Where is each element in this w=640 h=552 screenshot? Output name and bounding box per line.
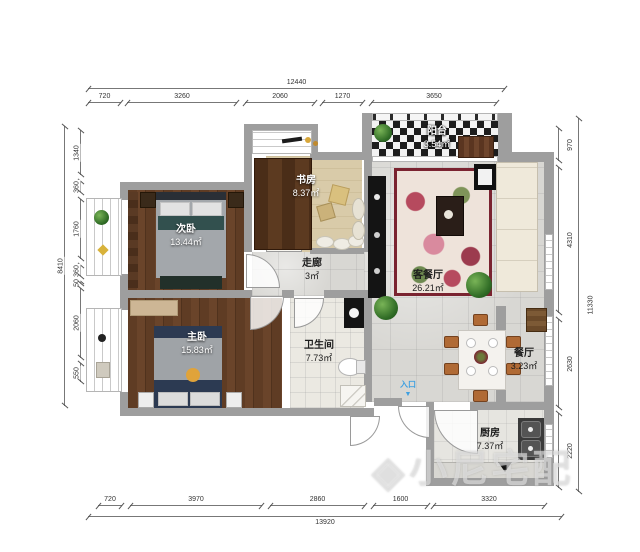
dim-segment: 720: [88, 102, 121, 103]
pillow: [158, 392, 188, 406]
desk-item: [313, 141, 318, 146]
room-name: 走廊: [302, 258, 322, 271]
side-cushion: [352, 221, 365, 240]
nightstand: [228, 192, 244, 208]
side-cushion: [352, 198, 365, 220]
bay-window: [86, 308, 122, 392]
dining-chair: [506, 336, 521, 348]
plate: [488, 366, 498, 376]
room-label-balcony: 阳台 3.54㎡: [424, 126, 451, 150]
room-area: 3㎡: [302, 271, 322, 282]
door-arc-entry-left: [350, 416, 380, 446]
dim-segment: 1270: [322, 102, 363, 103]
dining-chair: [444, 363, 459, 375]
room-label-study: 书房 8.37㎡: [293, 175, 320, 199]
wall: [312, 152, 364, 160]
wall: [362, 113, 372, 160]
wall: [120, 274, 128, 298]
shower-tray: [340, 385, 366, 407]
balcony-crate: [458, 136, 494, 158]
dining-chair: [444, 336, 459, 348]
pillow: [160, 202, 190, 216]
dim-segment: 550: [80, 363, 81, 382]
entrance-arrow-icon: ▼: [400, 391, 416, 398]
plate: [488, 338, 498, 348]
closet: [128, 192, 138, 288]
room-label-master-bedroom: 主卧 15.83㎡: [181, 332, 213, 356]
bathroom-sink: [349, 308, 359, 318]
funnel-marker: [498, 462, 512, 472]
room-name: 卫生间: [304, 340, 334, 353]
wall: [120, 290, 252, 298]
room-area: 7.73㎡: [304, 353, 334, 364]
dim-segment: 2060: [80, 288, 81, 358]
plant-icon: [374, 296, 398, 320]
watermark-cube-icon: ◈: [372, 448, 407, 495]
tv-screen: [478, 169, 492, 185]
wall: [496, 306, 506, 332]
dim-total-top: 12440: [88, 88, 505, 89]
dim-segment: 1760: [80, 199, 81, 259]
room-area: 15.83㎡: [181, 345, 213, 356]
dining-chair: [473, 390, 488, 402]
box-decor: [96, 362, 110, 378]
wall: [498, 152, 546, 162]
room-label-kitchen: 厨房 7.37㎡: [477, 428, 504, 452]
tray: [444, 210, 453, 219]
room-area: 3.23㎡: [511, 361, 538, 372]
room-label-corridor: 走廊 3㎡: [302, 258, 322, 282]
bed-bench: [160, 276, 222, 289]
dim-segment: 50: [80, 281, 81, 284]
dim-segment: 720: [98, 505, 122, 506]
floorplan-canvas: 阳台 3.54㎡ 书房 8.37㎡ 次卧 13.44㎡ 走廊 3㎡ 客餐厅 26…: [0, 0, 640, 552]
dim-segment: 360: [80, 181, 81, 193]
sink-drain: [528, 427, 533, 432]
wall: [426, 478, 554, 486]
centerpiece: [474, 350, 488, 364]
dim-segment: 3320: [433, 505, 545, 506]
shelf: [130, 300, 178, 316]
room-name: 次卧: [170, 224, 202, 237]
dim-segment: 4310: [558, 167, 559, 313]
right-window: [545, 234, 553, 290]
wall: [324, 290, 372, 298]
headboard: [156, 192, 226, 200]
sink-drain: [528, 446, 533, 451]
dim-segment: 2060: [245, 102, 315, 103]
wardrobe: [254, 158, 312, 250]
nightstand: [140, 192, 156, 208]
room-name: 书房: [293, 175, 320, 188]
tv-knob: [374, 194, 380, 200]
dim-segment: 2630: [558, 319, 559, 408]
wall: [244, 124, 252, 252]
entrance-label: 入口: [400, 380, 416, 389]
dim-segment: 3650: [371, 102, 497, 103]
room-area: 7.37㎡: [477, 441, 504, 452]
room-area: 8.37㎡: [293, 188, 320, 199]
pillow: [192, 202, 222, 216]
nightstand: [226, 392, 242, 408]
room-label-living-dining: 客餐厅 26.21㎡: [412, 270, 444, 294]
dim-segment: 2220: [558, 413, 559, 488]
room-area: 13.44㎡: [170, 237, 202, 248]
kitchen-counter: [434, 462, 544, 478]
entrance-marker: 入口 ▼: [400, 381, 416, 398]
room-name: 客餐厅: [412, 270, 444, 283]
dim-segment: 360: [80, 265, 81, 277]
room-name: 主卧: [181, 332, 213, 345]
plate: [466, 338, 476, 348]
dim-total-right: 11330: [578, 118, 579, 492]
sofa: [496, 162, 538, 292]
room-name: 餐厅: [511, 348, 538, 361]
pillow: [190, 392, 220, 406]
dim-segment: 970: [558, 128, 559, 161]
dim-segment: 2860: [270, 505, 365, 506]
room-label-bathroom: 卫生间 7.73㎡: [304, 340, 334, 364]
seat-cushion: [316, 236, 334, 248]
wall: [470, 402, 546, 410]
sideboard: [526, 308, 547, 332]
tv-knob: [374, 268, 380, 274]
room-name: 阳台: [424, 126, 451, 139]
room-area: 3.54㎡: [424, 139, 451, 150]
fan-decor: [98, 334, 106, 342]
plant-icon: [466, 272, 492, 298]
dining-chair: [473, 314, 488, 326]
wall: [120, 182, 252, 190]
room-name: 厨房: [477, 428, 504, 441]
room-label-secondary-bedroom: 次卧 13.44㎡: [170, 224, 202, 248]
dim-segment: 3970: [130, 505, 262, 506]
dim-total-bottom: 13920: [88, 516, 562, 517]
room-area: 26.21㎡: [412, 283, 444, 294]
toilet-tank: [356, 360, 366, 374]
desk-item: [305, 137, 311, 143]
plant-icon: [94, 210, 109, 225]
plate: [466, 366, 476, 376]
dim-segment: 1340: [80, 130, 81, 175]
dim-total-left: 8410: [64, 126, 65, 406]
dim-segment: 3260: [127, 102, 237, 103]
kitchen-window: [545, 424, 553, 458]
door-arc-entry-right: [398, 406, 430, 438]
wall: [374, 398, 402, 406]
balcony-window: [372, 113, 498, 121]
wall: [120, 408, 374, 416]
nightstand: [138, 392, 154, 408]
round-cushion: [186, 368, 200, 382]
room-label-dining: 餐厅 3.23㎡: [511, 348, 538, 372]
tv-knob: [374, 232, 380, 238]
plant-icon: [374, 124, 392, 142]
dim-segment: 1600: [373, 505, 428, 506]
